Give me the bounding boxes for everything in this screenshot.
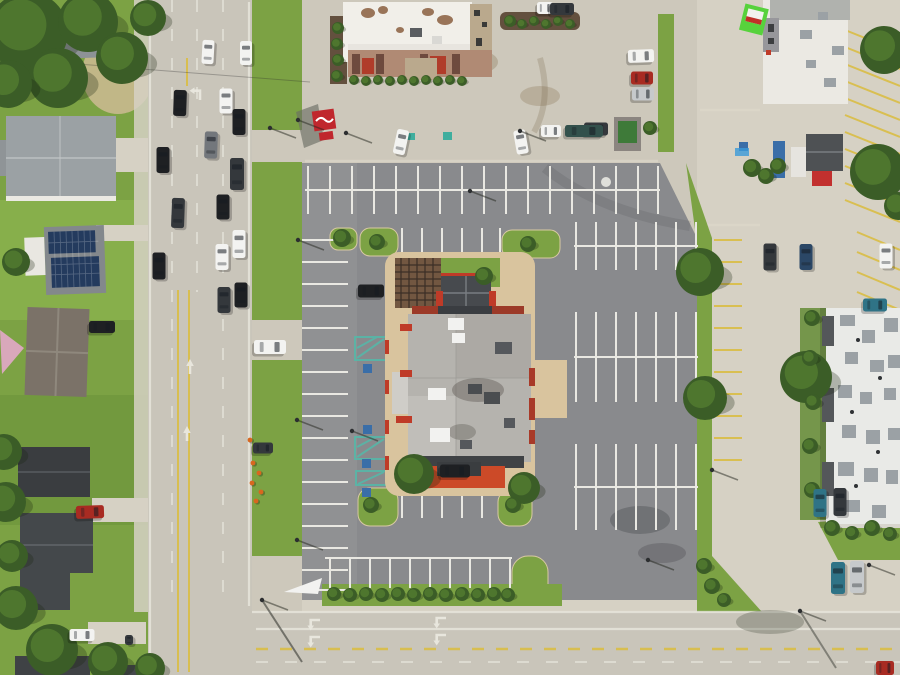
verge-driveway-3: [252, 556, 302, 612]
vehicle: [630, 88, 654, 104]
rtu-4: [468, 384, 482, 394]
ne-roof-hatch-1: [768, 24, 774, 32]
pergola: [395, 258, 441, 308]
curb-paint-3: [385, 420, 389, 434]
facade-red-awning-1: [362, 58, 374, 74]
house-roof-3: [6, 116, 116, 201]
east-red-trim-3: [529, 430, 535, 444]
aerial-photo-canvas: [0, 0, 900, 675]
west-awning-2: [400, 370, 412, 377]
vehicle: [218, 287, 234, 315]
rtu-9: [460, 440, 472, 449]
apron-east-extension: [533, 360, 567, 418]
handicap-sign-pad-4: [362, 488, 371, 497]
rtu-6: [428, 388, 446, 400]
dumpster-enclosure: [614, 117, 641, 151]
north-grass-strip: [658, 14, 674, 152]
vehicle: [153, 253, 169, 282]
ne-building-upper-roof: [770, 0, 850, 20]
vehicle: [874, 661, 894, 675]
rtu-5: [484, 392, 500, 404]
road-verge: [252, 0, 302, 612]
driveway-4: [88, 622, 146, 644]
vehicle: [217, 195, 233, 222]
north-rtu-2: [432, 36, 442, 44]
green-dumpster: [618, 121, 637, 143]
vehicle: [240, 41, 255, 67]
rtu-1: [448, 318, 464, 330]
vehicle: [173, 90, 189, 119]
vehicle: [87, 321, 115, 336]
handicap-sign-pad-2: [363, 425, 372, 434]
curb-paint-1: [385, 340, 389, 354]
vehicle: [548, 3, 574, 18]
vehicle: [252, 340, 286, 357]
aerial-photo: [0, 0, 900, 675]
vehicle: [834, 488, 850, 518]
entry-canopy: [405, 58, 437, 80]
east-commercial-building: [820, 308, 900, 528]
oil-stain-1: [610, 506, 670, 534]
west-awning-1: [400, 324, 412, 331]
vehicle: [438, 465, 470, 481]
vehicle: [861, 299, 887, 315]
rtu-2: [452, 333, 465, 343]
verge-driveway-1: [252, 130, 302, 162]
tree-shadow-on-road: [736, 610, 804, 634]
vehicle: [204, 131, 221, 161]
vehicle: [233, 230, 249, 260]
north-rtu-1: [410, 28, 422, 37]
vehicle: [629, 72, 653, 88]
handicap-sign-pad-1: [363, 364, 372, 373]
rtu-7: [430, 428, 450, 442]
rtu-3: [495, 342, 512, 354]
vehicle: [201, 40, 217, 67]
handicap-sign-pad-3: [362, 459, 371, 468]
vehicle: [233, 109, 249, 137]
vehicle: [74, 505, 105, 522]
vehicle: [356, 285, 384, 301]
vehicle: [764, 244, 780, 273]
vehicle: [880, 244, 896, 271]
ne-red-unit: [766, 50, 771, 55]
vehicle: [850, 561, 867, 595]
solar-array-2: [51, 256, 100, 288]
blue-dumpster: [735, 148, 749, 156]
vehicle: [171, 198, 188, 231]
east-building-west-sections: [822, 316, 834, 496]
main-flat-roof: [408, 314, 531, 462]
west-annex-roof: [392, 372, 408, 414]
red-canopy: [812, 171, 832, 186]
rtu-8: [504, 418, 515, 428]
vehicle: [831, 562, 848, 596]
house-roof-5: [18, 447, 90, 497]
main-road-west: [148, 0, 252, 675]
curb-paint-2: [385, 380, 389, 394]
vehicle: [230, 158, 247, 192]
house-roof-4: [24, 307, 89, 397]
vehicle: [539, 125, 561, 140]
west-awning-3: [396, 416, 412, 423]
roof-stain-2: [448, 424, 476, 440]
oil-stain-2: [638, 543, 686, 563]
vehicle: [251, 443, 273, 457]
east-red-trim-1: [529, 368, 535, 386]
vehicle: [563, 125, 603, 140]
vehicle: [216, 244, 232, 272]
handicap-symbol-marking: [601, 177, 611, 187]
vehicle: [235, 283, 251, 310]
curb-paint-4: [385, 456, 389, 470]
vehicle: [157, 147, 173, 175]
vehicle: [626, 49, 655, 65]
road-surface-west: [148, 0, 252, 675]
vehicle: [68, 629, 95, 644]
white-kiosk: [791, 147, 806, 177]
ne-roof-hatch-2: [768, 38, 774, 44]
pavement-stain-2: [520, 86, 560, 106]
roof-dark-patch: [456, 314, 531, 378]
curbside-spot-mark-2: [443, 132, 452, 140]
vehicle: [800, 244, 816, 272]
east-red-trim-2: [529, 398, 535, 420]
vehicle: [814, 489, 830, 519]
ne-building-west-wing: [763, 18, 779, 52]
